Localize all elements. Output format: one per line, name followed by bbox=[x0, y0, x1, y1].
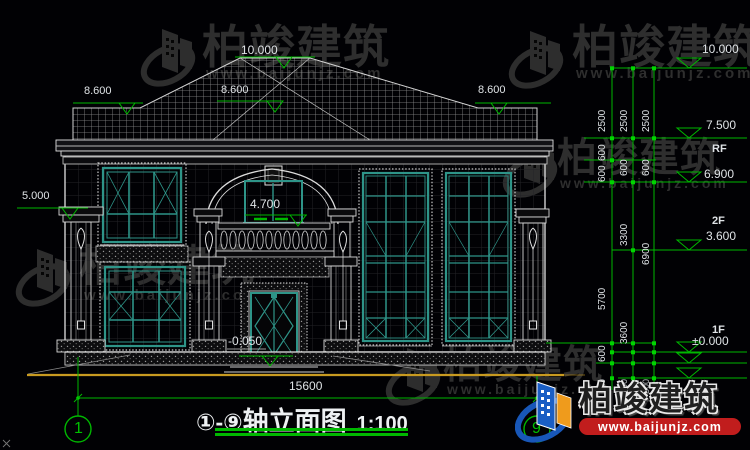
elev-eave-left: 8.600 bbox=[84, 86, 112, 97]
elev-balcony-win: 4.700 bbox=[250, 198, 280, 210]
dim-2500-b: 2500 bbox=[620, 110, 630, 132]
dim-6900: 6900 bbox=[642, 243, 652, 265]
cad-canvas: 柏竣建筑 www.baijunjz.com 柏竣建筑 www.baijunjz.… bbox=[0, 0, 750, 450]
dim-600-c1: 600 bbox=[642, 159, 652, 176]
title-underline bbox=[215, 428, 408, 431]
elev-r-10000: 10.000 bbox=[702, 43, 739, 55]
dim-3300: 3300 bbox=[620, 224, 630, 246]
dim-2500-a: 2500 bbox=[598, 110, 608, 132]
title-underline bbox=[215, 433, 408, 436]
title-name: 轴立面图 bbox=[243, 406, 347, 436]
floor-rf: RF bbox=[712, 144, 727, 155]
elev-entry: -0.050 bbox=[228, 335, 262, 347]
dim-5700: 5700 bbox=[598, 288, 608, 310]
elev-r-3600: 3.600 bbox=[706, 230, 736, 242]
elev-r-0000: ±0.000 bbox=[692, 335, 729, 347]
company-logo-icon bbox=[515, 376, 579, 448]
floor-2f: 2F bbox=[712, 216, 725, 227]
company-logo-brand: 柏竣建筑 bbox=[579, 382, 719, 415]
dim-total-width: 15600 bbox=[289, 380, 322, 392]
axis-1-number: 1 bbox=[74, 421, 83, 437]
dim-3600: 3600 bbox=[620, 322, 630, 344]
elev-r-7500: 7.500 bbox=[706, 119, 736, 131]
company-logo-url: www.baijunjz.com bbox=[579, 418, 741, 435]
title-axis-range: ①-⑨ bbox=[196, 409, 243, 435]
company-logo: 柏竣建筑 www.baijunjz.com bbox=[515, 376, 750, 450]
elev-ridge: 10.000 bbox=[241, 44, 278, 56]
elev-eave-mid: 8.600 bbox=[221, 85, 249, 96]
elev-eave-right: 8.600 bbox=[478, 85, 506, 96]
dim-600-a2: 600 bbox=[598, 165, 608, 182]
dim-600-a1: 600 bbox=[598, 144, 608, 161]
dim-600-a3: 600 bbox=[598, 345, 608, 362]
dim-600-b1: 600 bbox=[620, 159, 630, 176]
elev-porch: 5.000 bbox=[22, 191, 50, 202]
dim-2500-c: 2500 bbox=[642, 110, 652, 132]
elev-r-6900: 6.900 bbox=[704, 168, 734, 180]
